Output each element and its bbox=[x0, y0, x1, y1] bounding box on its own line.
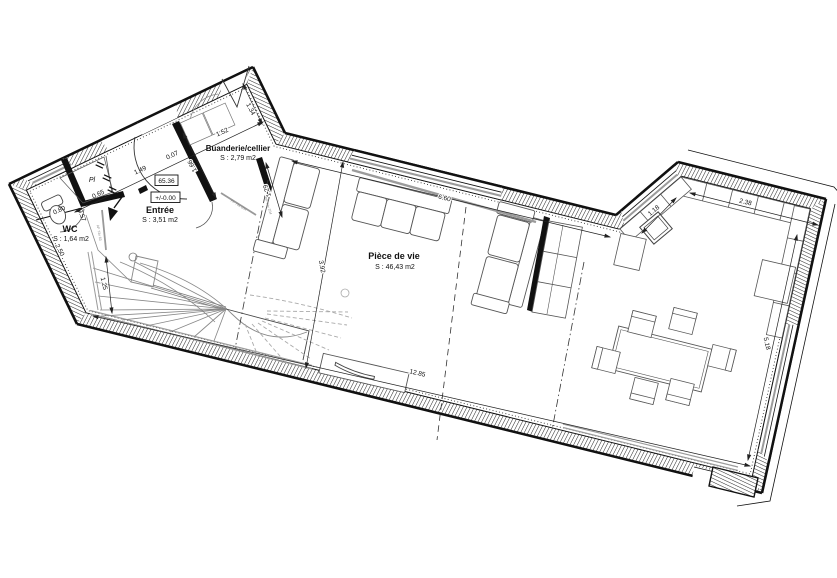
svg-text:+/-0.00: +/-0.00 bbox=[155, 195, 176, 202]
svg-text:Pl: Pl bbox=[89, 177, 96, 184]
svg-text:S : 46,43 m2: S : 46,43 m2 bbox=[375, 264, 415, 271]
svg-text:S : 3,51 m2: S : 3,51 m2 bbox=[142, 217, 178, 224]
svg-text:S : 2,79 m2: S : 2,79 m2 bbox=[220, 155, 256, 162]
svg-text:S : 1,64 m2: S : 1,64 m2 bbox=[53, 236, 89, 243]
svg-text:Buanderie/cellier: Buanderie/cellier bbox=[206, 144, 270, 153]
svg-text:WC: WC bbox=[63, 224, 78, 234]
svg-text:Pièce de vie: Pièce de vie bbox=[368, 251, 420, 261]
svg-text:Entrée: Entrée bbox=[146, 205, 174, 215]
svg-text:65.36: 65.36 bbox=[158, 178, 175, 185]
